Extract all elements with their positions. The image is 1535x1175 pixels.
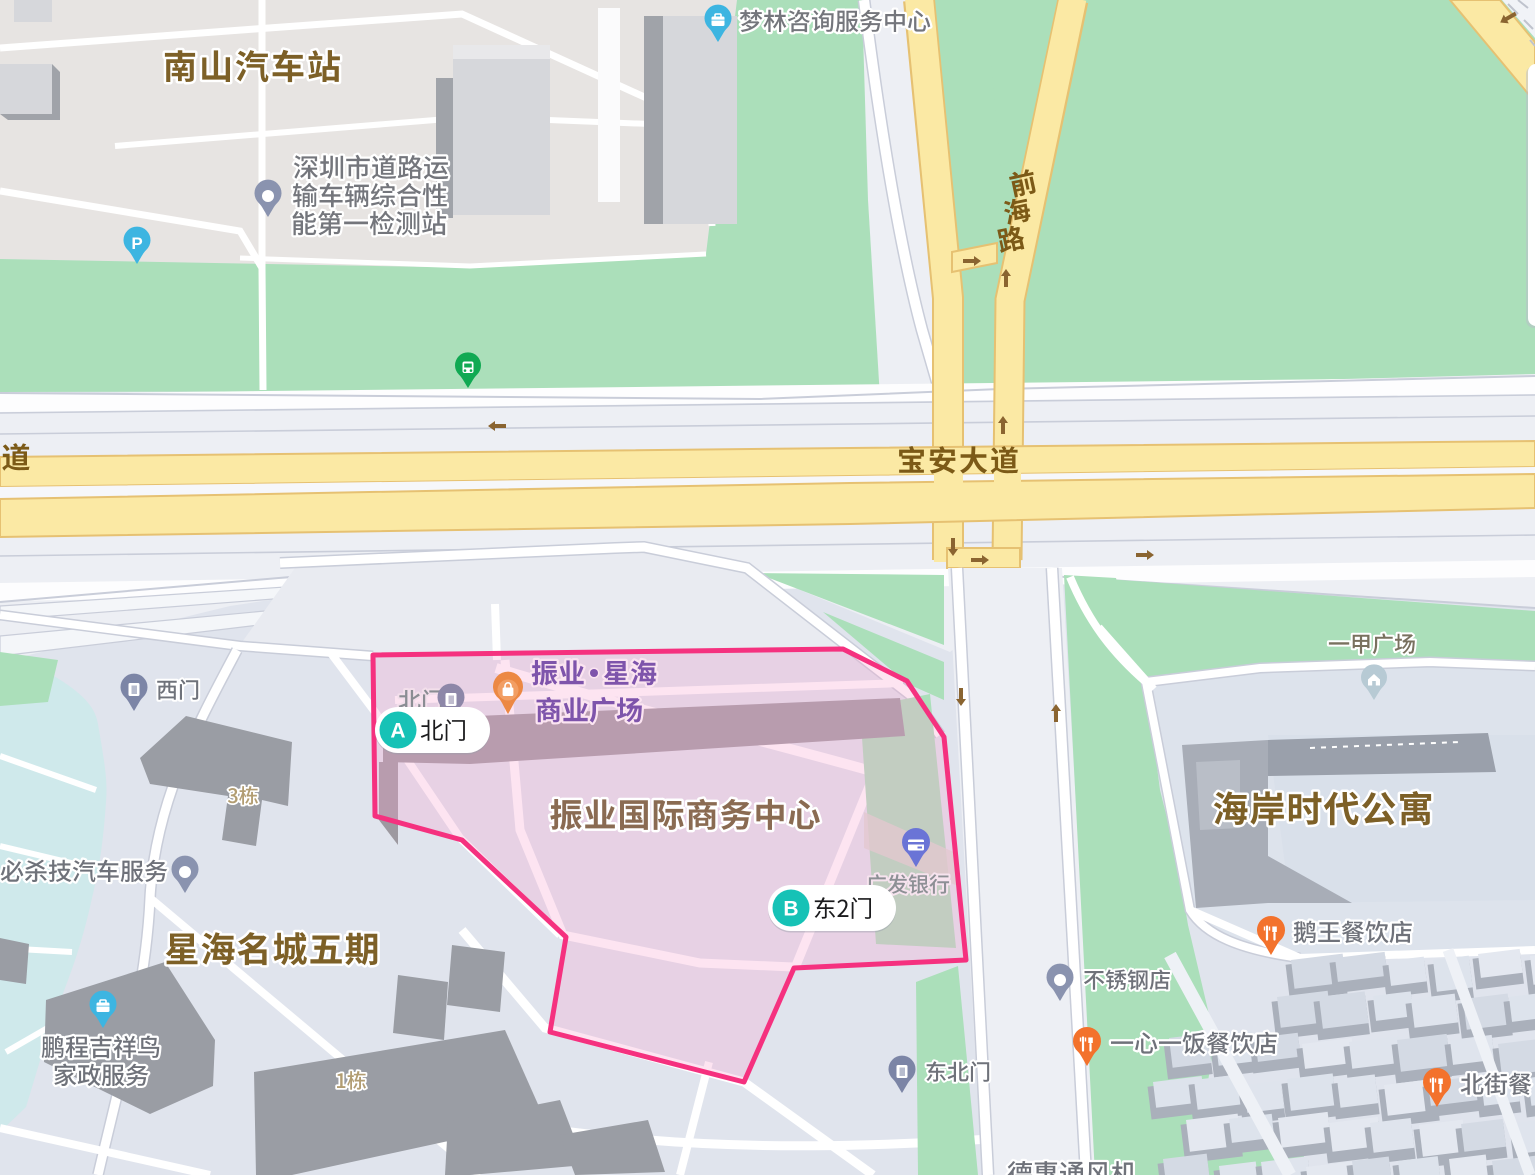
svg-text:P: P <box>131 234 142 253</box>
svg-text:A: A <box>390 720 405 743</box>
svg-text:B: B <box>783 898 798 921</box>
